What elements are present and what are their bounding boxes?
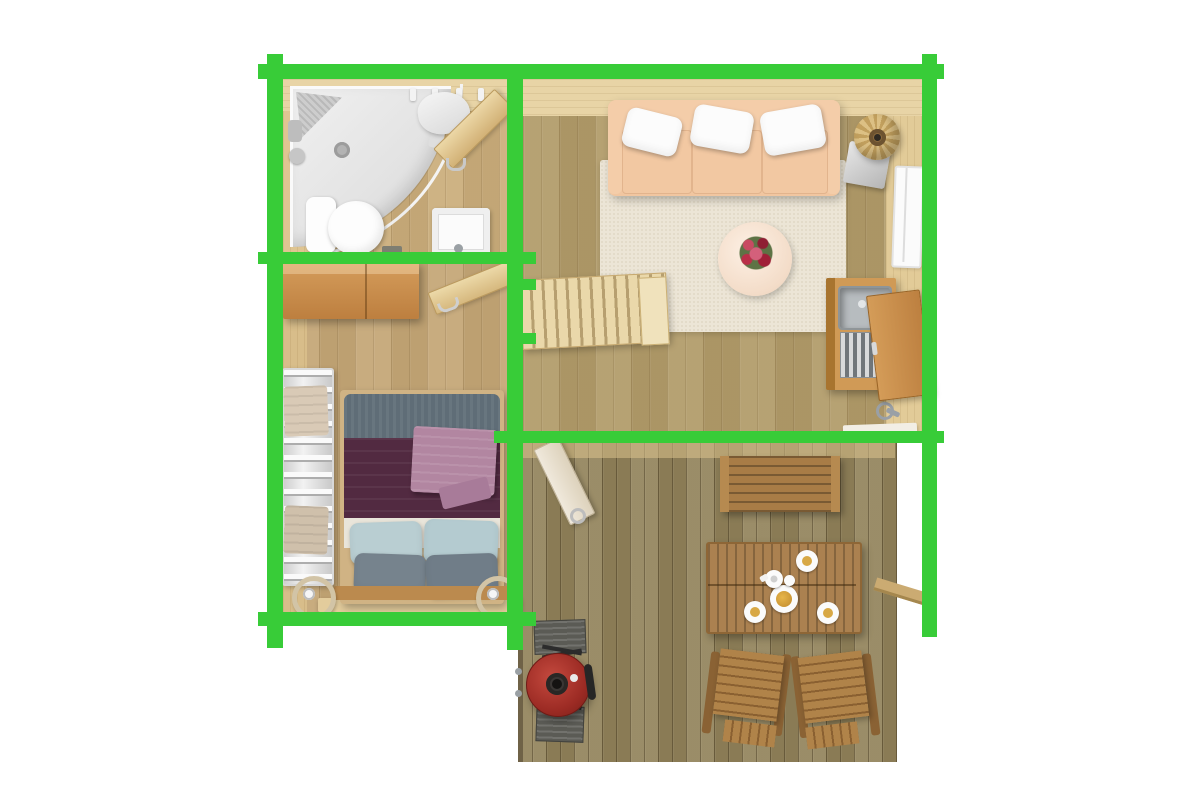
wall-top (258, 64, 944, 79)
radiator-towel (283, 385, 329, 437)
door-handle-icon (446, 158, 466, 171)
deck-bench (720, 456, 840, 512)
plate (744, 601, 766, 623)
candle-icon (487, 588, 499, 600)
grill-lid-knob-icon (552, 679, 562, 689)
shower-head-icon (288, 120, 302, 142)
wall-left (267, 54, 283, 648)
grill-hinge-icon (515, 668, 522, 675)
grill-hinge-icon (515, 690, 522, 697)
chair-footrest (723, 719, 777, 747)
lounge-chair (700, 645, 795, 751)
wall-bathroom-divider (258, 252, 536, 264)
wall-living-deck-divider (494, 431, 944, 443)
wall-stair-stub (523, 279, 536, 290)
wall-interior-vertical (507, 64, 523, 650)
creamer (784, 575, 795, 586)
flower-bouquet (737, 233, 775, 273)
grill-thermometer-icon (570, 674, 578, 682)
stair-landing (638, 276, 670, 345)
toilet-bowl (328, 201, 384, 255)
shower-drain (334, 142, 350, 158)
window (891, 166, 925, 269)
chair-slats (713, 648, 785, 721)
sofa-arm (608, 104, 622, 194)
floor-plan (0, 0, 1200, 800)
sofa-arm (826, 104, 840, 194)
radiator-towel (283, 505, 329, 555)
food-plate (770, 585, 798, 613)
candle-icon (303, 588, 315, 600)
wardrobe-seam (365, 262, 367, 319)
wall-bedroom-bottom (258, 612, 536, 626)
towel-hook-icon (410, 88, 416, 101)
plate (796, 550, 818, 572)
bench-side (831, 456, 840, 512)
chair-slats (798, 650, 870, 723)
wall-right (922, 54, 937, 637)
bench-side (720, 456, 729, 512)
plate (817, 602, 839, 624)
deck-door-handle-icon (570, 508, 586, 524)
lounge-chair (786, 647, 881, 753)
chair-footrest (805, 721, 859, 749)
lamp-bulb-dot (874, 134, 881, 141)
shower-mixer-icon (289, 148, 305, 164)
wall-stair-stub (523, 333, 536, 344)
sink-faucet-icon (858, 300, 866, 308)
